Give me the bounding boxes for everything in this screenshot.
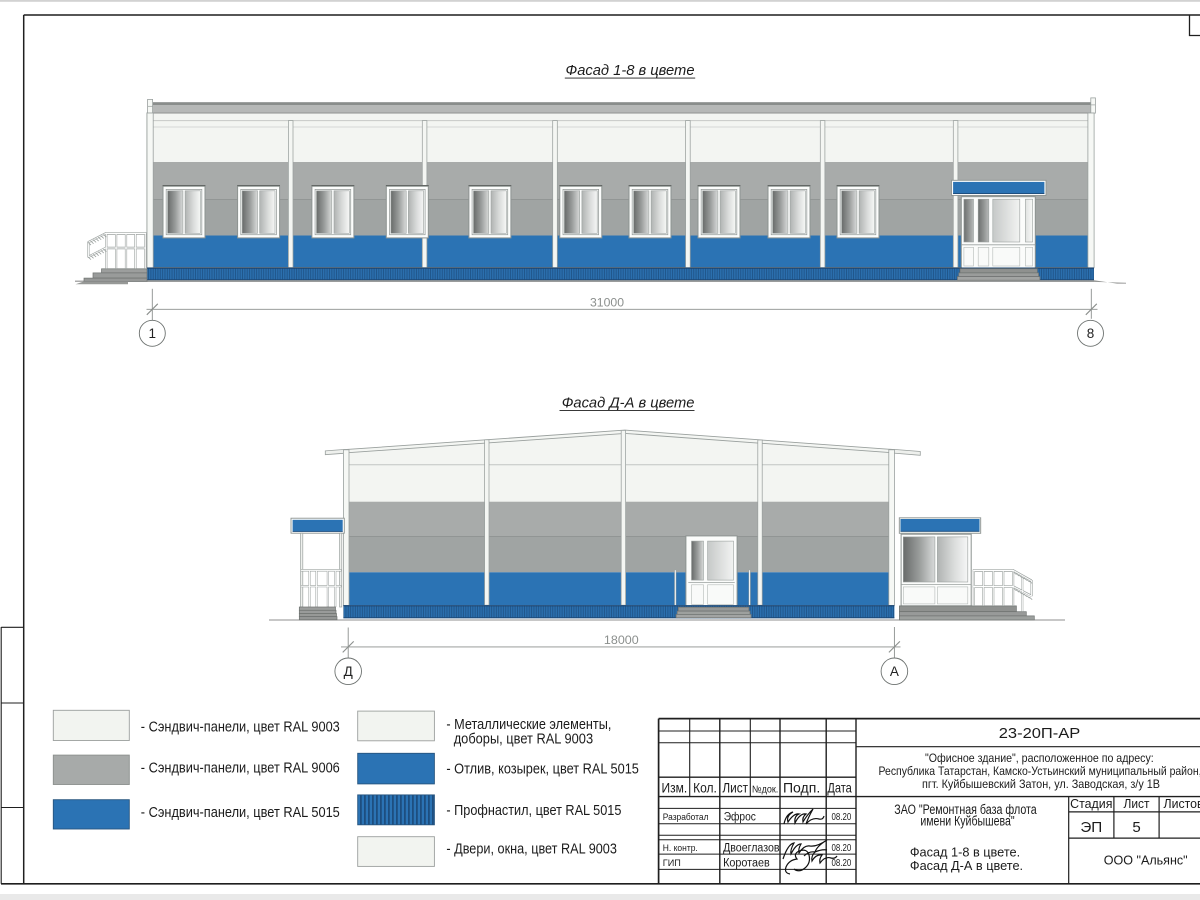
svg-text:ЭП: ЭП: [1080, 819, 1102, 836]
svg-text:Подп.: Подп.: [783, 779, 820, 795]
svg-text:Фасад Д-А в цвете.: Фасад Д-А в цвете.: [910, 859, 1023, 873]
svg-text:Республика Татарстан, Камско-У: Республика Татарстан, Камско-Устьинский …: [879, 764, 1200, 778]
svg-text:Листов: Листов: [1164, 796, 1200, 811]
svg-text:А: А: [890, 664, 899, 679]
svg-text:Лист: Лист: [1124, 796, 1150, 811]
svg-text:- Металлические элементы,: - Металлические элементы,: [446, 717, 611, 733]
svg-text:Стадия: Стадия: [1070, 796, 1112, 811]
svg-text:№док.: №док.: [752, 784, 778, 795]
svg-text:Изм.: Изм.: [662, 779, 688, 795]
svg-text:Лист: Лист: [722, 779, 748, 795]
svg-text:Н. контр.: Н. контр.: [663, 843, 698, 853]
svg-text:5: 5: [1132, 819, 1140, 836]
svg-text:имени Куйбышева": имени Куйбышева": [920, 814, 1014, 829]
svg-text:Фасад Д-А в цвете: Фасад Д-А в цвете: [562, 394, 695, 411]
svg-text:Эфрос: Эфрос: [724, 812, 756, 824]
svg-text:"Офисное здание", расположенно: "Офисное здание", расположенное по адрес…: [925, 751, 1154, 765]
svg-text:Д: Д: [344, 664, 353, 679]
svg-text:08.20: 08.20: [832, 812, 852, 823]
svg-text:08.20: 08.20: [832, 843, 852, 854]
svg-text:Коротаев: Коротаев: [723, 857, 770, 869]
svg-text:- Профнастил, цвет RAL 5015: - Профнастил, цвет RAL 5015: [446, 803, 621, 819]
svg-text:- Отлив, козырек, цвет RAL 501: - Отлив, козырек, цвет RAL 5015: [446, 762, 639, 778]
svg-text:- Сэндвич-панели, цвет RAL 900: - Сэндвич-панели, цвет RAL 9003: [141, 720, 340, 736]
svg-text:08.20: 08.20: [832, 858, 852, 869]
svg-text:ГИП: ГИП: [663, 858, 681, 869]
svg-text:Двоеглазов: Двоеглазов: [723, 842, 779, 854]
svg-text:Фасад 1-8 в цвете.: Фасад 1-8 в цвете.: [910, 846, 1020, 860]
svg-text:18000: 18000: [604, 635, 639, 647]
svg-text:ООО "Альянс": ООО "Альянс": [1104, 853, 1188, 868]
svg-text:доборы, цвет RAL 9003: доборы, цвет RAL 9003: [454, 732, 593, 748]
svg-text:8: 8: [1087, 326, 1095, 341]
svg-text:пгт. Куйбышевский Затон, ул. З: пгт. Куйбышевский Затон, ул. Заводская, …: [922, 777, 1160, 791]
svg-text:Дата: Дата: [827, 779, 852, 795]
svg-text:Кол.: Кол.: [693, 779, 717, 795]
svg-text:Фасад 1-8 в цвете: Фасад 1-8 в цвете: [566, 62, 695, 79]
svg-text:- Двери, окна, цвет RAL 9003: - Двери, окна, цвет RAL 9003: [446, 842, 617, 858]
svg-text:23-20П-АР: 23-20П-АР: [999, 726, 1081, 742]
svg-text:1: 1: [149, 326, 157, 341]
svg-text:- Сэндвич-панели, цвет RAL 501: - Сэндвич-панели, цвет RAL 5015: [141, 805, 340, 821]
svg-text:- Сэндвич-панели, цвет RAL 900: - Сэндвич-панели, цвет RAL 9006: [141, 761, 340, 777]
svg-text:31000: 31000: [590, 298, 624, 310]
svg-text:Разработал: Разработал: [663, 812, 709, 822]
